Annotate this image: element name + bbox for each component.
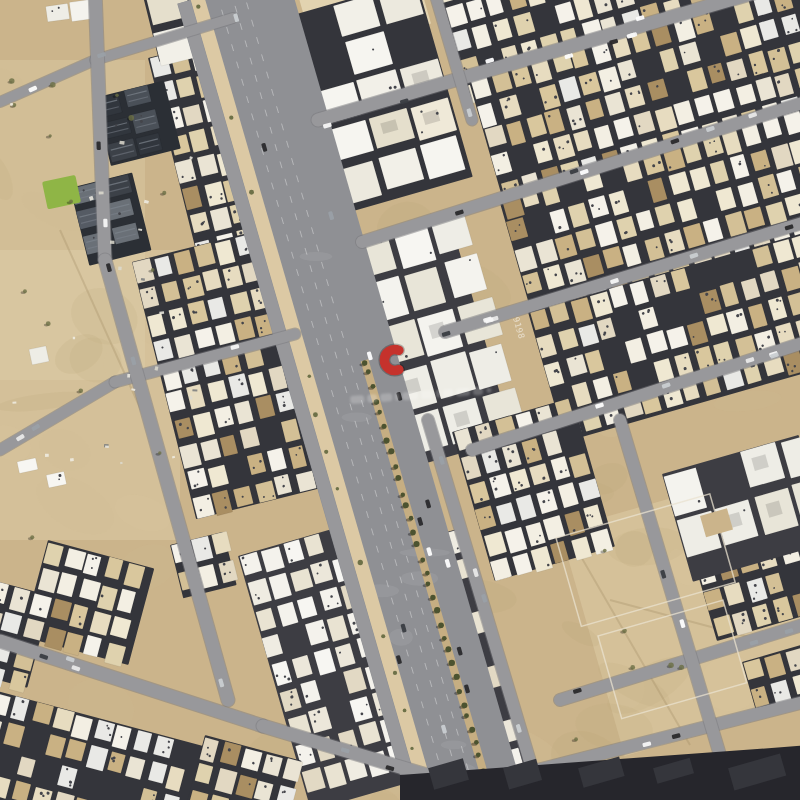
satellite-map-view[interactable]: 9198: [0, 0, 800, 800]
satellite-map-container: 9198: [0, 0, 800, 800]
city-block: [29, 346, 49, 365]
